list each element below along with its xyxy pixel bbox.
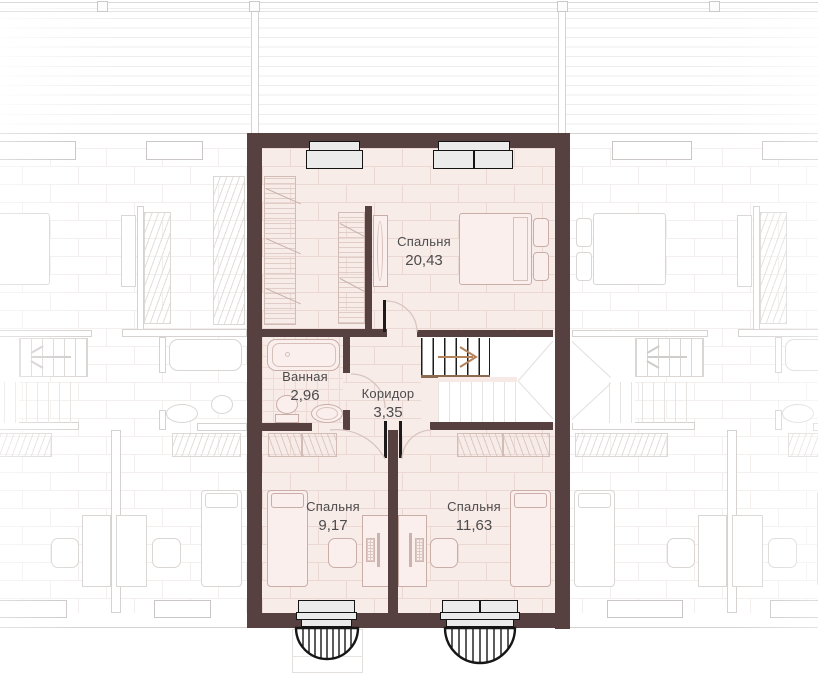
ghost-wall-segment (159, 410, 166, 430)
door-leaf (399, 421, 402, 458)
chair (430, 538, 458, 568)
wardrobe (503, 433, 550, 457)
room-label-corridor: Коридор 3,35 (362, 386, 415, 423)
ghost-stairs (635, 338, 704, 377)
chair (328, 538, 357, 568)
ghost-sink (166, 404, 198, 423)
window (306, 150, 363, 169)
railing-post (709, 1, 720, 12)
ghost-cabinet (737, 215, 752, 287)
ghost-window (762, 141, 818, 160)
bathtub-inner (272, 343, 336, 367)
ghost-desk (732, 515, 763, 587)
ghost-wardrobe (0, 433, 52, 457)
ghost-balconette (0, 628, 64, 663)
ghost-window (612, 141, 692, 160)
ghost-wardrobe (172, 433, 241, 457)
ghost-bed (593, 213, 666, 285)
ghost-wall-segment (572, 422, 695, 430)
ghost-bathtub (169, 339, 242, 371)
ghost-wall-segment (197, 423, 247, 431)
ghost-window (146, 141, 203, 160)
ghost-bathtub (785, 339, 818, 371)
room-name: Спальня (397, 234, 451, 250)
pillow (271, 493, 304, 508)
wall-bedroom-south (262, 329, 387, 337)
sink-inner (316, 407, 338, 420)
door-leaf (383, 300, 386, 332)
pillow (533, 252, 549, 281)
wall-bathroom-east (343, 337, 350, 373)
room-name: Коридор (362, 386, 415, 402)
bed-fold-line (513, 217, 528, 281)
party-wall-line (251, 3, 259, 133)
balconette-right (445, 628, 515, 663)
adjacent-unit-right (555, 133, 818, 628)
railing-post (249, 1, 260, 12)
wall-wardrobe-partition (365, 206, 372, 335)
room-area: 2,96 (282, 387, 328, 406)
ghost-bed (0, 213, 50, 285)
ghost-wall-segment (753, 206, 760, 335)
ghost-stair-arrow (31, 356, 71, 358)
mirror (377, 221, 383, 281)
ghost-toilet (211, 395, 233, 414)
room-name: Спальня (306, 499, 360, 515)
wall-bathroom-south (262, 423, 312, 431)
ghost-wall-segment (738, 329, 818, 337)
ghost-wardrobe (760, 212, 787, 324)
wall-north (247, 133, 570, 148)
room-area: 9,17 (306, 517, 360, 536)
room-name: Спальня (447, 499, 501, 515)
window-outer (301, 619, 352, 627)
ghost-wall-segment (0, 422, 79, 430)
railing-post (97, 1, 108, 12)
ghost-window (607, 600, 683, 618)
room-label-bedroom-right: Спальня 11,63 (447, 499, 501, 536)
adjacent-unit-left (0, 133, 262, 628)
stairs-upper-flight (421, 338, 490, 377)
ghost-stairs (19, 338, 88, 377)
wall-east (555, 133, 570, 629)
ghost-window (770, 600, 818, 618)
ghost-porch (146, 630, 217, 675)
porch-line (293, 656, 362, 657)
ghost-stair-arrow (647, 356, 687, 358)
ghost-desk (698, 515, 727, 587)
ghost-wardrobe (575, 433, 668, 457)
pillow (514, 493, 547, 508)
ghost-window (0, 141, 76, 160)
ghost-porch (762, 630, 818, 675)
floor-patch (421, 377, 438, 423)
ghost-chair (51, 538, 79, 568)
ghost-chair (152, 538, 181, 568)
monitor (377, 533, 380, 567)
ghost-wall-segment (0, 330, 92, 337)
ghost-wardrobe (788, 433, 818, 457)
ghost-desk (82, 515, 111, 587)
room-name: Ванная (282, 369, 328, 385)
ghost-pillow (578, 493, 611, 508)
keyboard (366, 538, 375, 562)
room-area: 11,63 (447, 517, 501, 536)
room-label-bedroom-large: Спальня 20,43 (397, 234, 451, 271)
railing-post (557, 1, 568, 12)
room-area: 20,43 (397, 252, 451, 271)
wall-bathroom-east (343, 410, 350, 430)
wall-west (247, 133, 262, 628)
ghost-chair (667, 538, 695, 568)
wardrobe (302, 433, 337, 457)
ghost-wall-segment (159, 337, 166, 373)
toilet-tank (275, 414, 299, 423)
room-label-bedroom-left: Спальня 9,17 (306, 499, 360, 536)
porch-outline (292, 629, 363, 673)
window-mullion (473, 150, 475, 169)
room-area: 3,35 (362, 404, 415, 423)
ghost-lower-flight (608, 382, 687, 423)
ghost-pillow (576, 218, 592, 247)
ghost-wall-segment (572, 330, 708, 337)
ghost-window (154, 600, 211, 618)
wardrobe (457, 433, 503, 457)
terrace-railing (0, 2, 818, 12)
bathtub-drain (285, 352, 290, 357)
monitor (409, 533, 412, 567)
ghost-desk (116, 515, 147, 587)
keyboard (415, 538, 424, 562)
room-label-bathroom: Ванная 2,96 (282, 369, 328, 406)
ghost-wall-segment (137, 206, 144, 335)
wardrobe (268, 433, 302, 457)
ghost-wall-segment (775, 410, 782, 430)
window-outer (446, 619, 514, 627)
ghost-wall-segment (813, 423, 818, 431)
ghost-sink (782, 404, 814, 423)
ghost-wardrobe (144, 212, 171, 324)
door-leaf (384, 421, 387, 458)
ghost-balconette (151, 628, 213, 659)
ghost-pillow (576, 252, 592, 281)
pillow (533, 218, 549, 247)
ghost-wardrobe (213, 176, 245, 325)
ghost-wall-segment (775, 337, 782, 373)
ghost-chair (768, 538, 797, 568)
ghost-lower-flight (0, 382, 71, 423)
ghost-wall-segment (122, 329, 247, 337)
stairs-lower-flight-faint (438, 382, 517, 423)
party-wall-line (558, 3, 566, 133)
ghost-cabinet (121, 215, 136, 287)
ghost-pillow (205, 493, 238, 508)
wall-bedroom-north (430, 422, 553, 430)
ghost-balconette (610, 628, 680, 663)
ghost-window (0, 600, 67, 618)
ghost-balconette (767, 628, 818, 659)
wall-bedroom-divider (388, 430, 398, 613)
floor-plan-canvas: Спальня 20,43 Ванная 2,96 Коридор 3,35 С… (0, 0, 818, 681)
wall-stairs-north (417, 330, 553, 337)
terrace-deck-boards (0, 0, 818, 133)
